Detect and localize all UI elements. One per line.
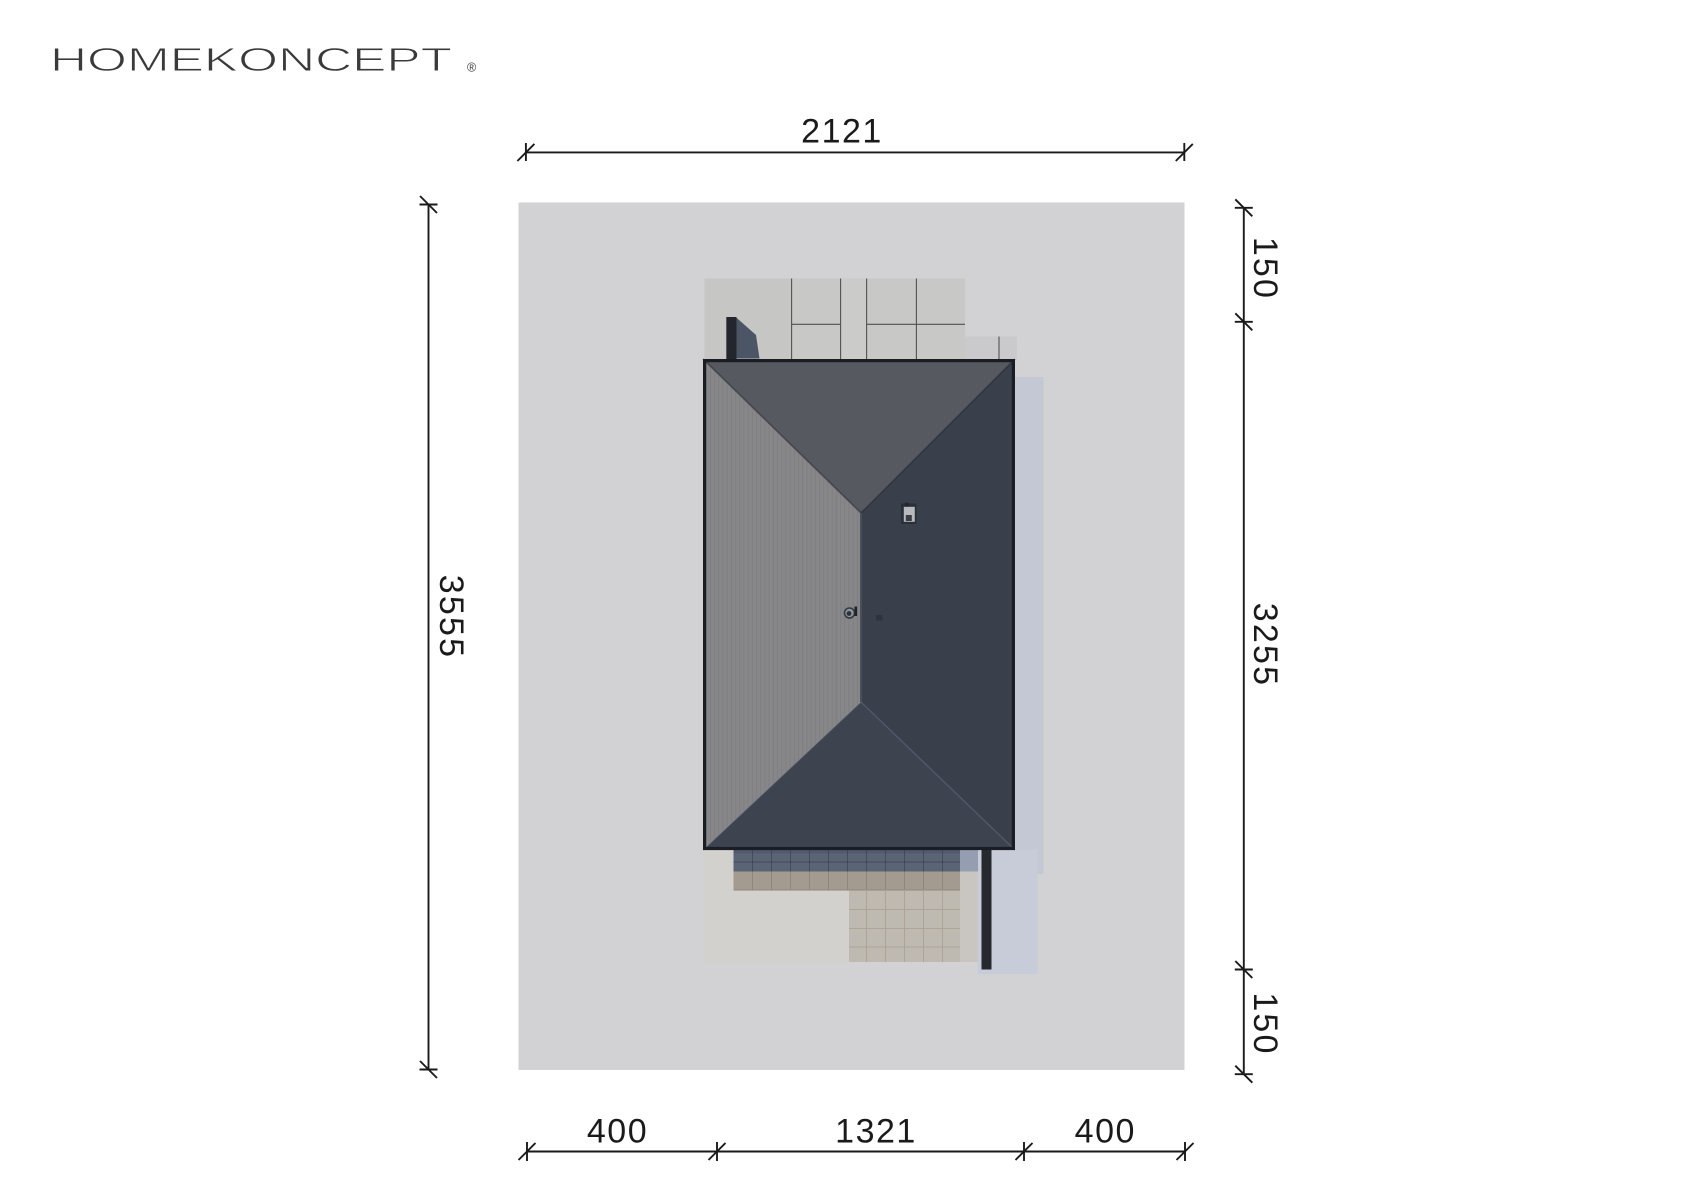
svg-text:400: 400 (1075, 1113, 1136, 1151)
svg-text:400: 400 (587, 1113, 648, 1151)
svg-text:HOMEKONCEPT: HOMEKONCEPT (50, 42, 452, 79)
svg-text:2121: 2121 (801, 113, 883, 151)
svg-text:1321: 1321 (835, 1113, 917, 1151)
svg-text:150: 150 (1246, 992, 1284, 1055)
svg-text:3555: 3555 (432, 575, 470, 659)
svg-text:3255: 3255 (1246, 603, 1284, 687)
svg-text:150: 150 (1246, 237, 1284, 300)
svg-text:®: ® (467, 61, 477, 75)
